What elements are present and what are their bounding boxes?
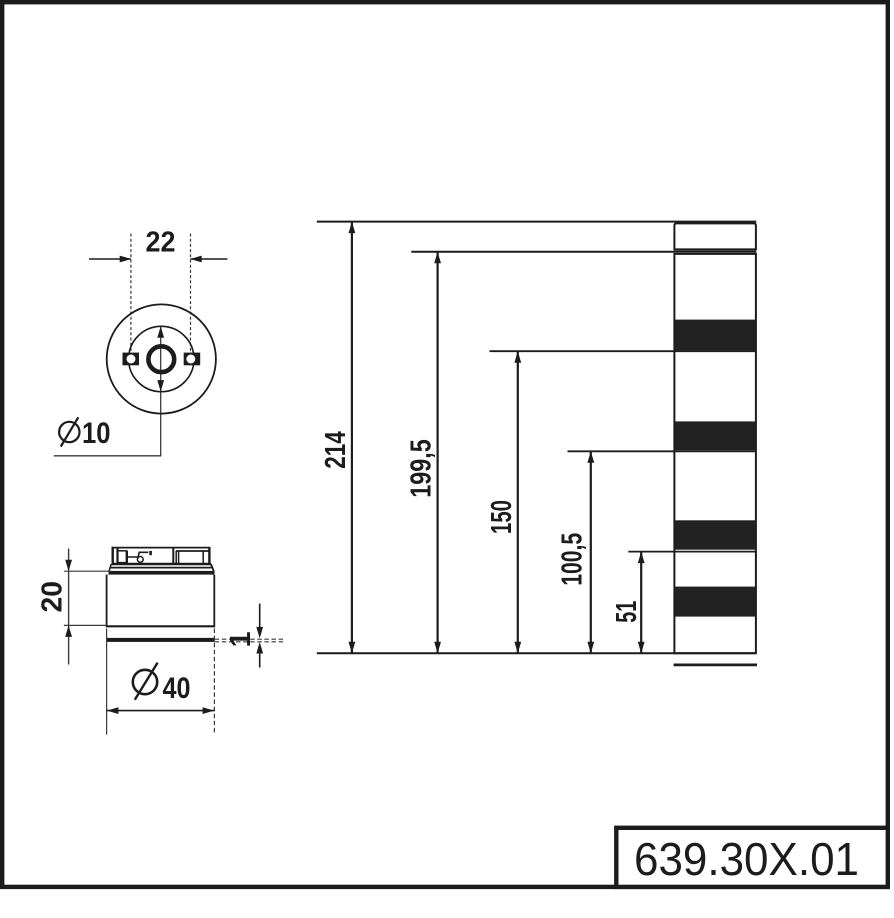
svg-text:199,5: 199,5	[406, 439, 438, 498]
svg-text:20: 20	[37, 581, 69, 613]
svg-text:22: 22	[146, 227, 176, 259]
svg-text:40: 40	[163, 672, 191, 705]
svg-text:214: 214	[320, 431, 352, 469]
svg-text:150: 150	[486, 500, 518, 534]
svg-text:1: 1	[225, 631, 257, 647]
svg-text:639.30X.01: 639.30X.01	[634, 833, 859, 885]
svg-text:10: 10	[82, 417, 111, 450]
svg-text:51: 51	[611, 601, 643, 623]
svg-text:100,5: 100,5	[557, 533, 589, 586]
